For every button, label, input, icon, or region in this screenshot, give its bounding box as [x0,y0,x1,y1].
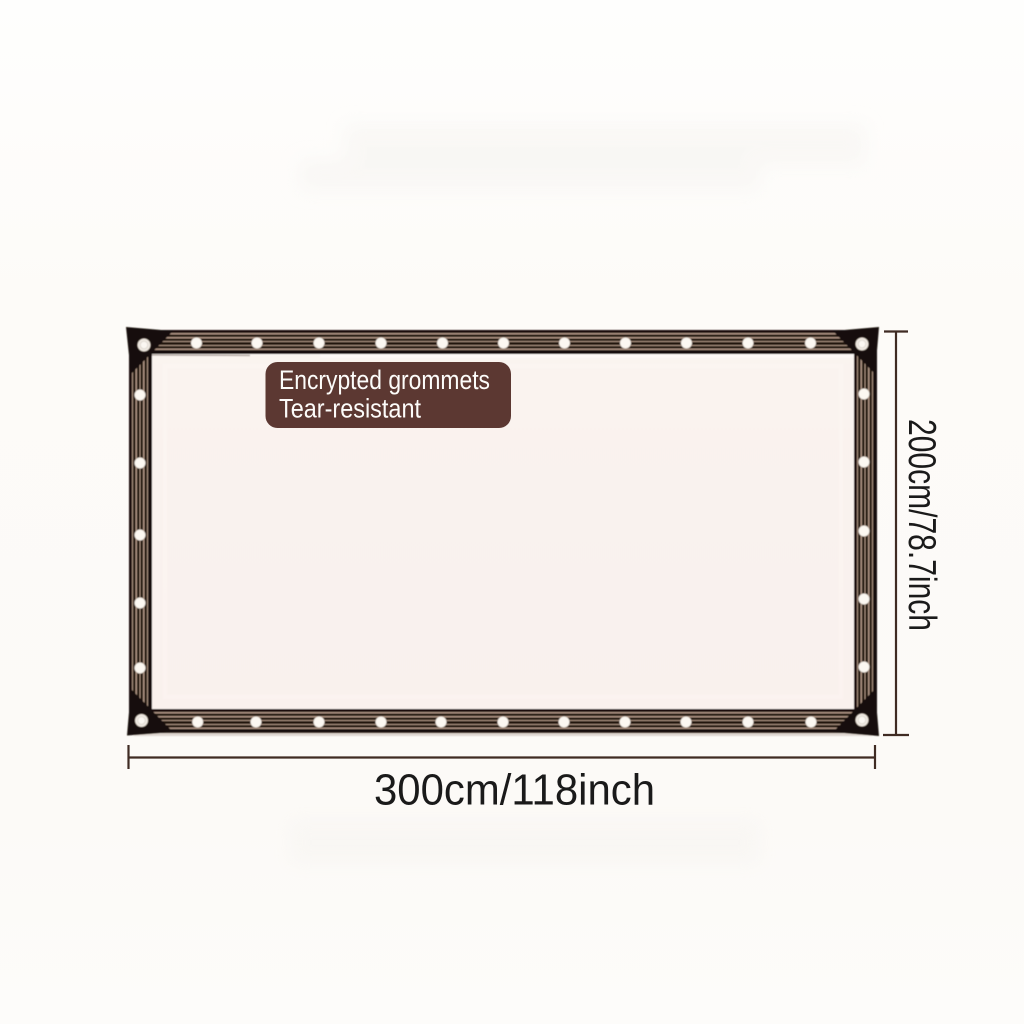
svg-text:Encrypted grommets: Encrypted grommets [279,365,490,395]
svg-text:200cm/78.7inch: 200cm/78.7inch [900,419,943,631]
svg-text:Tear-resistant: Tear-resistant [279,394,421,424]
svg-text:300cm/118inch: 300cm/118inch [374,766,655,815]
